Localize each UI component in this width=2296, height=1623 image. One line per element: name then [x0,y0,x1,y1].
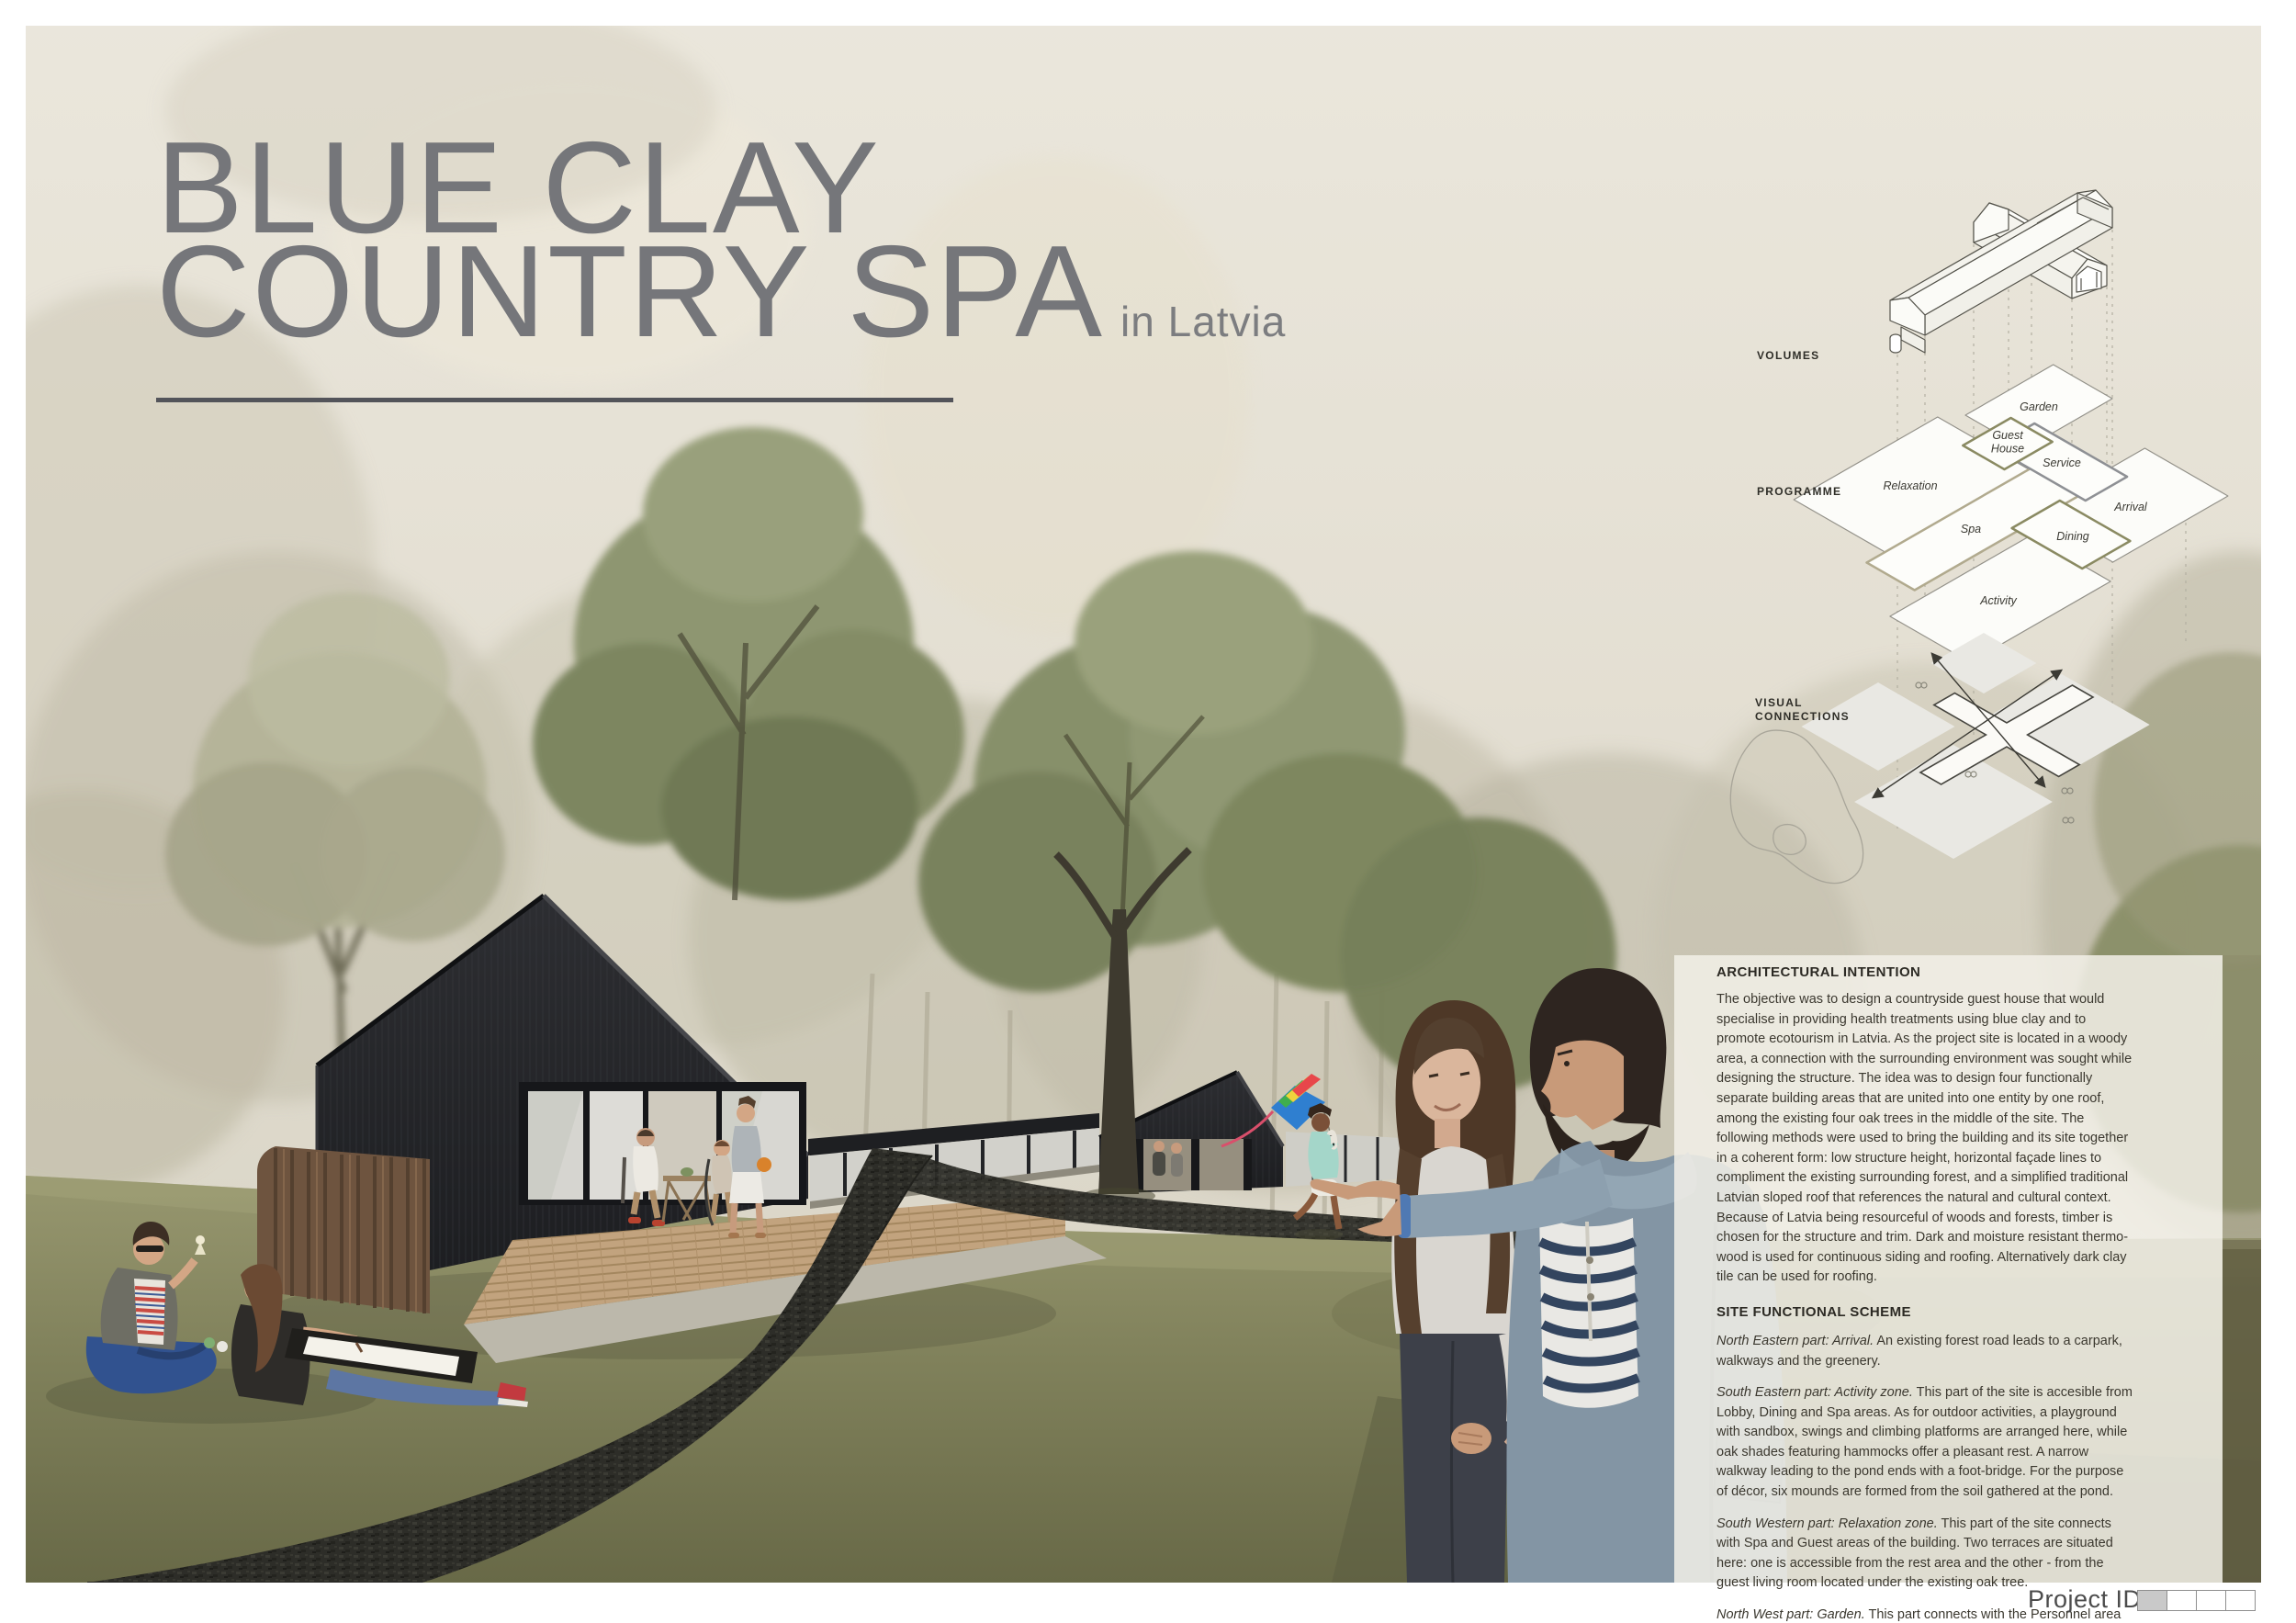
plate-label-guest-house: GuestHouse [1991,429,2024,455]
page-markers [2138,1590,2256,1611]
zone-text: This part of the site is accesible from … [1716,1385,2133,1499]
zone-lead: South Western part: Relaxation zone. [1716,1516,1938,1531]
architectural-intention-heading: ARCHITECTURAL INTENTION [1716,964,2138,980]
volumes-axonometric [1890,190,2112,353]
plate-label-arrival: Arrival [2113,501,2148,513]
plate-label-service: Service [2043,456,2081,469]
zone-lead: North West part: Garden. [1716,1607,1865,1622]
site-functional-scheme-heading: SITE FUNCTIONAL SCHEME [1716,1304,2138,1320]
visual-connections-plan [1730,633,2149,884]
zone-lead: North Eastern part: Arrival. [1716,1334,1874,1348]
plate-label-garden: Garden [2020,400,2058,413]
layer-label-volumes: VOLUMES [1757,349,1819,363]
presentation-board: BLUE CLAY COUNTRY SPAin Latvia [0,0,2296,1623]
page-marker [2137,1590,2167,1611]
zone-paragraph-south-western: South Western part: Relaxation zone. Thi… [1716,1515,2138,1594]
section-site-functional-scheme: SITE FUNCTIONAL SCHEME North Eastern par… [1716,1304,2138,1623]
page-marker [2196,1590,2226,1611]
pond-outline [1730,730,1863,884]
section-architectural-intention: ARCHITECTURAL INTENTION The objective wa… [1716,964,2138,1288]
zone-paragraph-north-eastern: North Eastern part: Arrival. An existing… [1716,1332,2138,1371]
page-marker [2225,1590,2256,1611]
zone-paragraph-south-eastern: South Eastern part: Activity zone. This … [1716,1383,2138,1503]
zone-lead: South Eastern part: Activity zone. [1716,1385,1913,1400]
text-panel: ARCHITECTURAL INTENTION The objective wa… [1674,955,2223,1583]
plate-label-spa: Spa [1961,523,1981,535]
programme-plates: Garden GuestHouse Service Relaxation Arr… [1794,365,2228,662]
plate-label-activity: Activity [1979,594,2017,607]
plate-label-relaxation: Relaxation [1883,479,1937,492]
architectural-intention-body: The objective was to design a countrysid… [1716,990,2138,1288]
page-marker [2167,1590,2197,1611]
layer-label-visual-connections: VISUAL CONNECTIONS [1755,696,1850,724]
layer-label-programme: PROGRAMME [1757,485,1841,499]
plate-label-dining: Dining [2056,530,2088,543]
